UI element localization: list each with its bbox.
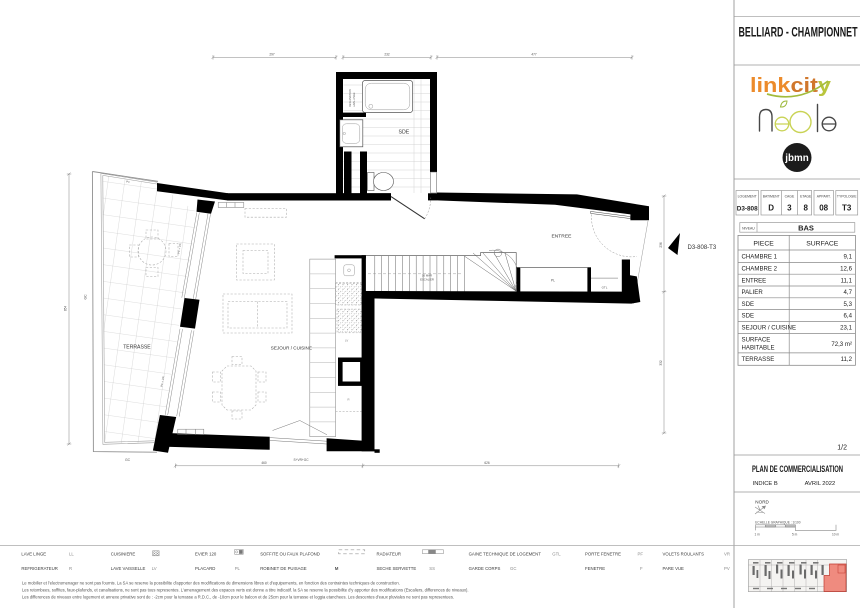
svg-text:332: 332 [659,360,663,366]
svg-text:D: D [768,204,774,213]
svg-text:236: 236 [659,242,663,248]
svg-text:GAINE TECHNIQUE DE LOGEMENT: GAINE TECHNIQUE DE LOGEMENT [469,551,542,556]
svg-text:PV: PV [724,566,730,571]
svg-text:EVIER 120: EVIER 120 [195,551,217,556]
svg-text:477: 477 [531,53,537,57]
svg-text:TYPOLOGIE: TYPOLOGIE [837,195,857,199]
svg-text:3: 3 [787,204,792,213]
svg-text:CHAMBRE 1: CHAMBRE 1 [742,254,778,261]
svg-text:PARE VUE: PARE VUE [662,566,684,571]
svg-text:SOFFITE OU FAUX PLAFOND: SOFFITE OU FAUX PLAFOND [260,551,320,556]
svg-text:SS: SS [429,566,435,571]
svg-text:SEJOUR / CUISINE: SEJOUR / CUISINE [741,325,796,332]
svg-text:6,4: 6,4 [844,313,853,320]
svg-text:SEJOUR / CUISINE: SEJOUR / CUISINE [271,345,312,350]
svg-text:BAS: BAS [798,223,814,232]
svg-text:F: F [640,566,643,571]
svg-text:LOGEMENT: LOGEMENT [738,195,757,199]
svg-text:GARDE CORPS: GARDE CORPS [469,566,501,571]
svg-text:ECHELLE GRAPHIQUE : 1/100: ECHELLE GRAPHIQUE : 1/100 [755,521,800,525]
svg-text:5 m: 5 m [792,533,798,537]
svg-text:ENTREE: ENTREE [742,277,767,284]
svg-text:11,2: 11,2 [841,356,853,363]
svg-text:ETAGE: ETAGE [800,195,812,199]
svg-text:460: 460 [261,461,267,465]
svg-text:HABITABLE: HABITABLE [741,344,774,351]
svg-text:LAVE LINGE: LAVE LINGE [21,551,46,556]
svg-text:M: M [335,566,339,571]
svg-text:626: 626 [484,461,490,465]
svg-text:11,1: 11,1 [841,277,853,284]
svg-text:4,7: 4,7 [844,289,853,296]
svg-text:R: R [69,566,72,571]
svg-text:PL: PL [235,566,241,571]
svg-text:GTL: GTL [552,551,561,556]
svg-text:Le mobilier et l'electromenage: Le mobilier et l'electromenager ne sont … [22,580,400,585]
svg-text:TERRASSE: TERRASSE [741,356,774,363]
svg-text:RADIATEUR: RADIATEUR [376,551,401,556]
svg-text:232: 232 [384,53,390,57]
svg-text:RESERVATION: RESERVATION [349,89,352,107]
svg-text:TERRASSE: TERRASSE [123,344,151,350]
svg-text:CAGE: CAGE [785,195,795,199]
svg-text:APPART.: APPART. [817,195,831,199]
svg-text:SDE: SDE [399,129,410,135]
svg-text:NIVEAU: NIVEAU [742,226,755,230]
svg-text:GC: GC [510,566,516,571]
svg-text:SURFACE: SURFACE [806,241,839,248]
svg-text:ROBINET DE PUISAGE: ROBINET DE PUISAGE [260,566,307,571]
svg-text:297: 297 [269,53,275,57]
svg-text:9,1: 9,1 [844,254,853,261]
svg-text:VOLETS ROULANTS: VOLETS ROULANTS [662,551,704,556]
svg-text:CUISINIERE: CUISINIERE [111,551,136,556]
svg-text:ENTREE: ENTREE [552,234,573,240]
svg-text:PORTE FENETRE: PORTE FENETRE [585,551,621,556]
svg-text:BELLIARD - CHAMPIONNET: BELLIARD - CHAMPIONNET [739,24,858,40]
svg-text:8: 8 [803,204,808,213]
svg-text:S+VR+GC: S+VR+GC [293,458,309,462]
svg-text:LAVE VAISSELLE: LAVE VAISSELLE [111,566,146,571]
svg-text:INDICE B: INDICE B [753,481,778,487]
svg-text:AVRIL 2022: AVRIL 2022 [805,481,836,487]
svg-text:1/2: 1/2 [837,445,847,452]
svg-text:854: 854 [63,306,67,312]
svg-text:D3-808: D3-808 [737,206,758,213]
svg-text:R: R [347,397,349,401]
svg-text:08: 08 [819,204,828,213]
svg-text:CHAMBRE 2: CHAMBRE 2 [742,266,778,273]
svg-text:5,3: 5,3 [844,301,853,308]
svg-text:NORD: NORD [755,500,769,505]
svg-text:VR: VR [724,551,730,556]
svg-text:1 m: 1 m [754,533,760,537]
svg-text:Les retombees, soffites, faux-: Les retombees, soffites, faux-plafonds, … [22,587,469,592]
svg-text:jbmn: jbmn [784,153,808,164]
svg-text:GTL: GTL [602,286,608,290]
svg-text:REFRIGERATEUR: REFRIGERATEUR [21,566,57,571]
svg-text:LV: LV [152,566,157,571]
svg-text:BATIMENT: BATIMENT [763,195,780,199]
svg-text:SECHE SERVIETTE: SECHE SERVIETTE [376,566,416,571]
svg-text:12,6: 12,6 [840,266,852,273]
svg-text:D3-808-T3: D3-808-T3 [688,245,717,251]
svg-text:PL: PL [551,279,555,283]
svg-text:PF: PF [637,551,643,556]
svg-text:GC: GC [84,294,88,300]
svg-text:23,1: 23,1 [840,325,852,332]
svg-text:PALIER: PALIER [742,289,764,296]
svg-text:SDE: SDE [742,301,755,308]
svg-text:SDE: SDE [742,313,755,320]
svg-text:LV: LV [345,338,348,342]
svg-text:FENETRE: FENETRE [585,566,605,571]
svg-text:PLAN DE COMMERCIALISATION: PLAN DE COMMERCIALISATION [752,464,843,475]
svg-text:T3: T3 [842,204,852,213]
svg-text:PIECE: PIECE [753,241,774,248]
svg-text:SURFACE: SURFACE [741,337,770,344]
svg-text:10 m: 10 m [832,533,839,537]
svg-text:GC: GC [125,458,131,462]
svg-text:PLACARD: PLACARD [195,566,215,571]
svg-text:72,3 m²: 72,3 m² [831,341,852,348]
svg-text:LL: LL [69,551,74,556]
svg-text:LAVE-LINGE: LAVE-LINGE [353,92,356,107]
svg-text:Les differences de niveaux ent: Les differences de niveaux entre logemen… [22,594,454,599]
svg-text:ESCALIER: ESCALIER [420,277,434,281]
